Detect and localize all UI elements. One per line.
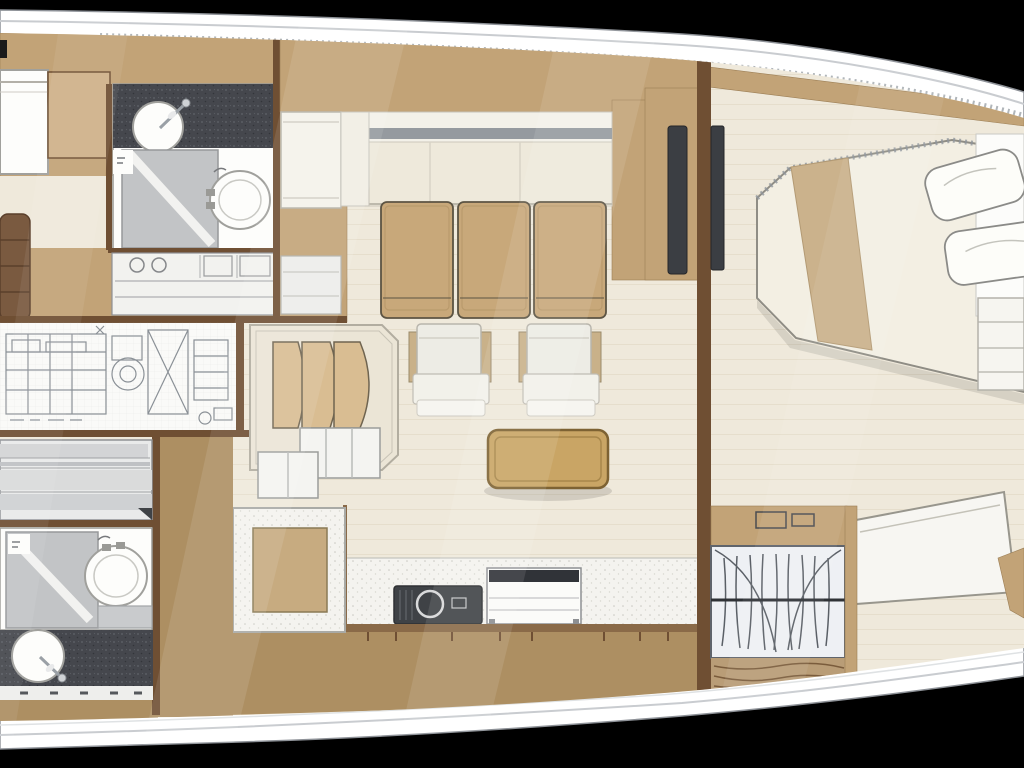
floor-plan-svg: Sailing yacht interior deck plan Hull — [0, 0, 1024, 768]
stove: Stove and oven — [487, 568, 581, 624]
galley-toe-kick — [340, 624, 700, 632]
shelf-unit: Bow shelf unit — [978, 298, 1024, 390]
armchair-1: Armchairs — [409, 324, 491, 416]
aft-cabin-starboard: Aft cabin (starboard) Double berth (star… — [0, 440, 160, 527]
steps-brown — [0, 214, 30, 320]
shower-bench — [98, 606, 152, 628]
shower-starboard: Shower (starboard) — [6, 532, 98, 628]
lower-landing: Lower landing — [229, 508, 345, 632]
shower-port: Shower (port) — [113, 150, 218, 248]
forward-bulkhead-wall — [697, 56, 711, 690]
dresser: Dresser with drawers — [112, 253, 277, 315]
wardrobe-post — [845, 506, 857, 692]
bulkhead-nav — [273, 33, 280, 322]
dining-chair-2: Salon chairs — [458, 202, 530, 318]
sofa: Salon sofa — [341, 112, 612, 206]
ensuite-port: Ensuite head with shower (port) Washbasi… — [106, 84, 278, 253]
bulkhead-engine-top — [0, 316, 347, 323]
tv-salon: TV screen (salon side) — [668, 126, 687, 274]
sideboard — [281, 112, 341, 208]
engine-room-wall — [236, 322, 244, 437]
ensuite-starboard: Ensuite head with shower (starboard) Sho… — [0, 528, 153, 700]
locker-port — [48, 72, 110, 158]
aft-corridor — [160, 437, 233, 717]
dining-chair-3: Salon chairs — [534, 202, 606, 318]
dining-chair-1: Salon chairs — [381, 202, 453, 318]
portlight — [0, 40, 7, 58]
armchair-2: Armchairs — [519, 324, 601, 416]
washbasin-starboard: Washbasin (starboard) — [12, 630, 66, 682]
nav-seat — [281, 256, 341, 314]
corridor-wall — [152, 437, 160, 715]
interior: Aft cabin (port) Ensuite head with showe… — [0, 33, 1024, 724]
engine-room: Engine room Engine and systems drawing — [0, 322, 244, 437]
berth-starboard: Double berth (starboard aft cabin) — [0, 440, 152, 520]
coffee-table: Coffee table — [484, 430, 612, 501]
wardrobe: Hanging wardrobe Clothes on hangers — [711, 506, 857, 692]
berth-port — [0, 70, 48, 174]
yacht-floor-plan: Sailing yacht interior deck plan Hull — [0, 0, 1024, 768]
tv-cabin: TV screen (cabin side) — [711, 126, 724, 270]
galley-sink: Galley sink — [394, 586, 482, 624]
